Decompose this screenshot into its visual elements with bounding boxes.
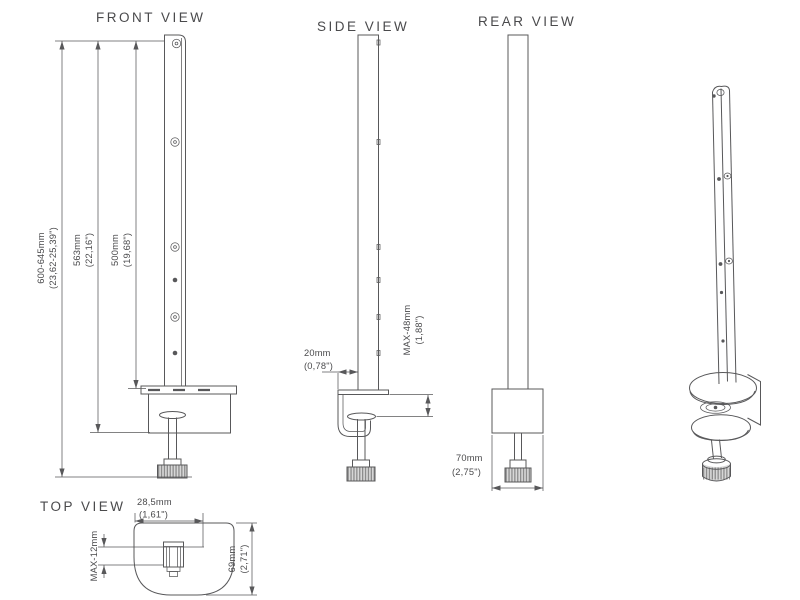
front-dim-pole-in: (19,68") xyxy=(122,233,132,267)
rear-view-title: REAR VIEW xyxy=(478,14,576,29)
top-dim-plate-in: (2,71") xyxy=(239,545,249,574)
side-dim-offset-in: (0,78") xyxy=(304,361,333,371)
front-dim-pole-mm: 500mm xyxy=(110,234,120,266)
rear-dimensions: 70mm (2,75") xyxy=(452,435,543,491)
side-view-title: SIDE VIEW xyxy=(317,19,409,34)
front-view: FRONT VIEW xyxy=(36,10,237,478)
front-pole-holes xyxy=(171,39,181,355)
top-dim-depth-in: (1,61") xyxy=(139,510,168,520)
front-view-title: FRONT VIEW xyxy=(96,10,206,25)
rear-knob xyxy=(505,468,531,482)
iso-pole xyxy=(712,86,736,384)
front-dim-overall-mm: 600-645mm xyxy=(36,232,46,283)
top-dim-depth-mm: 28,5mm xyxy=(137,497,172,507)
technical-drawing: FRONT VIEW xyxy=(0,0,800,600)
side-pole xyxy=(358,35,380,390)
top-view: TOP VIEW 28,5mm (1,61") xyxy=(40,497,257,595)
rear-pole xyxy=(508,35,528,389)
iso-clamp xyxy=(690,373,761,482)
side-dimensions: 20mm (0,78") MAX-48mm (1,88") xyxy=(304,305,433,417)
front-clamp xyxy=(141,386,237,478)
side-dim-offset-mm: 20mm xyxy=(304,348,331,358)
front-knob xyxy=(158,465,188,478)
side-knob xyxy=(347,467,375,481)
side-dim-clamp-mm: MAX-48mm xyxy=(402,305,412,356)
iso-knob xyxy=(703,459,731,481)
side-view: SIDE VIEW xyxy=(304,19,433,481)
front-pole xyxy=(165,35,186,386)
front-dim-mid-in: (22,16") xyxy=(84,233,94,267)
rear-dim-width-in: (2,75") xyxy=(452,467,481,477)
rear-dim-width-mm: 70mm xyxy=(456,453,483,463)
top-dim-edge-max: MAX-12mm xyxy=(89,531,99,582)
rear-view: REAR VIEW 70mm (2,75") xyxy=(452,14,576,491)
top-view-title: TOP VIEW xyxy=(40,499,126,514)
isometric-view xyxy=(690,86,761,481)
front-dim-overall-in: (23,62-25,39") xyxy=(48,227,58,289)
side-dim-clamp-in: (1,88") xyxy=(414,316,424,345)
top-dim-plate-mm: 69mm xyxy=(227,546,237,573)
side-clamp xyxy=(338,390,389,481)
front-dim-mid-mm: 563mm xyxy=(72,234,82,266)
rear-clamp xyxy=(492,389,543,482)
